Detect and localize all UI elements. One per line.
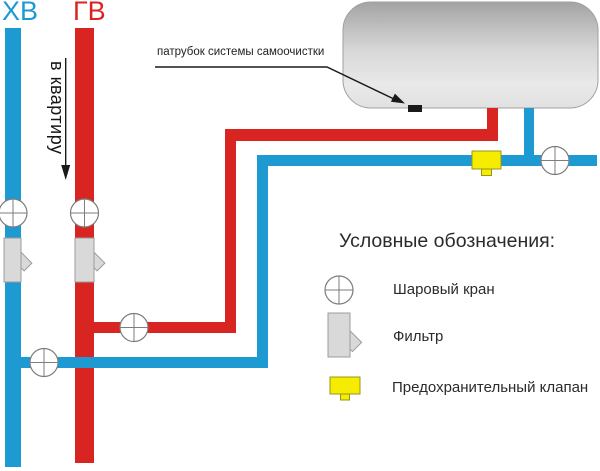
- cold-vertical-pipe: [257, 155, 268, 368]
- spigot-callout-label: патрубок системы самоочистки: [157, 46, 324, 59]
- ball-valve-hot-branch: [120, 314, 148, 342]
- to-apartment-label: в квартиру: [46, 61, 66, 155]
- ball-valve-tank-inlet: [541, 147, 569, 175]
- hot-vertical-pipe: [225, 129, 236, 333]
- ball-valve-cold-branch: [30, 349, 58, 377]
- safety-valve-pipe: [472, 151, 501, 176]
- filter-hot-riser: [75, 238, 105, 282]
- filter-cold-riser: [4, 238, 32, 282]
- cold-water-label: ХВ: [2, 0, 38, 27]
- legend-title: Условные обозначения:: [339, 231, 555, 252]
- cold-tank-drop-pipe: [524, 108, 534, 160]
- legend-ball-valve-symbol: [325, 276, 353, 304]
- diagram-canvas: ХВ ГВ в квартиру патрубок системы самооч…: [0, 0, 600, 471]
- self-cleaning-spigot: [408, 105, 422, 112]
- water-heater-tank: [343, 2, 598, 108]
- legend-item-safety-valve-label: Предохранительный клапан: [392, 380, 588, 397]
- hot-water-label: ГВ: [73, 0, 106, 27]
- legend-item-filter-label: Фильтр: [393, 329, 443, 346]
- hot-bottom-horizontal-pipe: [93, 322, 236, 333]
- legend-filter-symbol: [328, 313, 362, 357]
- legend-item-ball-valve-label: Шаровый кран: [393, 282, 495, 299]
- legend-safety-valve-symbol: [330, 377, 360, 400]
- ball-valve-hot-riser: [71, 199, 99, 227]
- hot-top-horizontal-pipe: [225, 129, 498, 141]
- ball-valve-cold-riser: [0, 199, 27, 227]
